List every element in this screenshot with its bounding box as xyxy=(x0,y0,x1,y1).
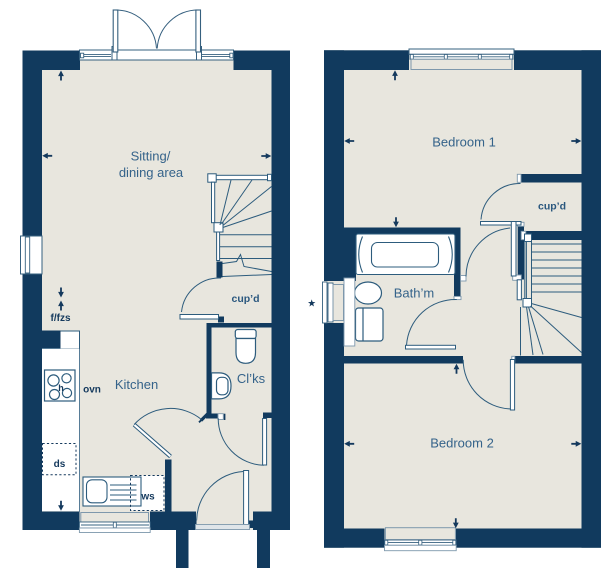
svg-text:Sitting/: Sitting/ xyxy=(131,149,171,164)
svg-text:ovn: ovn xyxy=(83,385,101,396)
svg-text:cup’d: cup’d xyxy=(538,201,566,213)
svg-text:Bedroom 2: Bedroom 2 xyxy=(430,436,494,451)
svg-text:h: h xyxy=(58,383,64,393)
svg-text:cup’d: cup’d xyxy=(232,293,260,305)
svg-text:ds: ds xyxy=(54,459,66,470)
svg-text:Cl’ks: Cl’ks xyxy=(237,371,266,386)
svg-text:Bath’m: Bath’m xyxy=(394,286,434,301)
svg-text:dining area: dining area xyxy=(119,165,184,180)
svg-text:Kitchen: Kitchen xyxy=(115,377,158,392)
svg-text:ws: ws xyxy=(140,492,155,503)
svg-text:f/fzs: f/fzs xyxy=(51,313,71,324)
svg-text:Bedroom 1: Bedroom 1 xyxy=(432,135,496,150)
